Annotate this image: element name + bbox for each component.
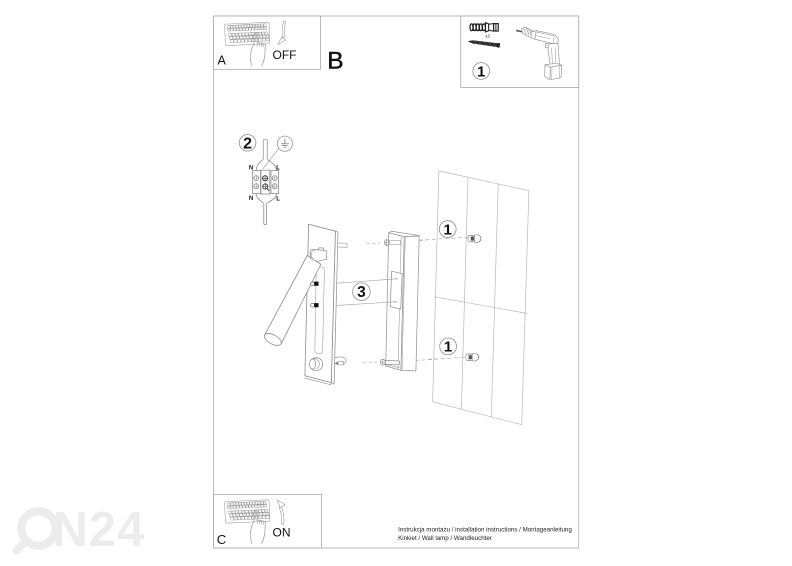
svg-text:N: N [249,165,253,171]
svg-text:1: 1 [444,339,452,356]
svg-text:1: 1 [444,221,452,238]
svg-text:OFF: OFF [273,48,297,62]
svg-text:N: N [249,196,253,202]
svg-text:2: 2 [243,135,252,152]
svg-text:3: 3 [357,284,366,301]
svg-text:C: C [217,532,227,547]
svg-text:Instrukcja montażu / installat: Instrukcja montażu / installation instru… [398,527,572,534]
svg-text:L: L [276,165,280,171]
svg-text:A: A [218,54,227,68]
svg-text:ON: ON [273,526,291,540]
svg-text:L: L [276,196,280,202]
svg-text:N24: N24 [53,503,146,557]
svg-text:x2: x2 [484,34,490,39]
svg-text:1: 1 [477,63,485,80]
svg-text:B: B [327,47,343,74]
svg-text:Kinkiet / Wall lamp / Wandleuc: Kinkiet / Wall lamp / Wandleuchter [398,535,492,542]
